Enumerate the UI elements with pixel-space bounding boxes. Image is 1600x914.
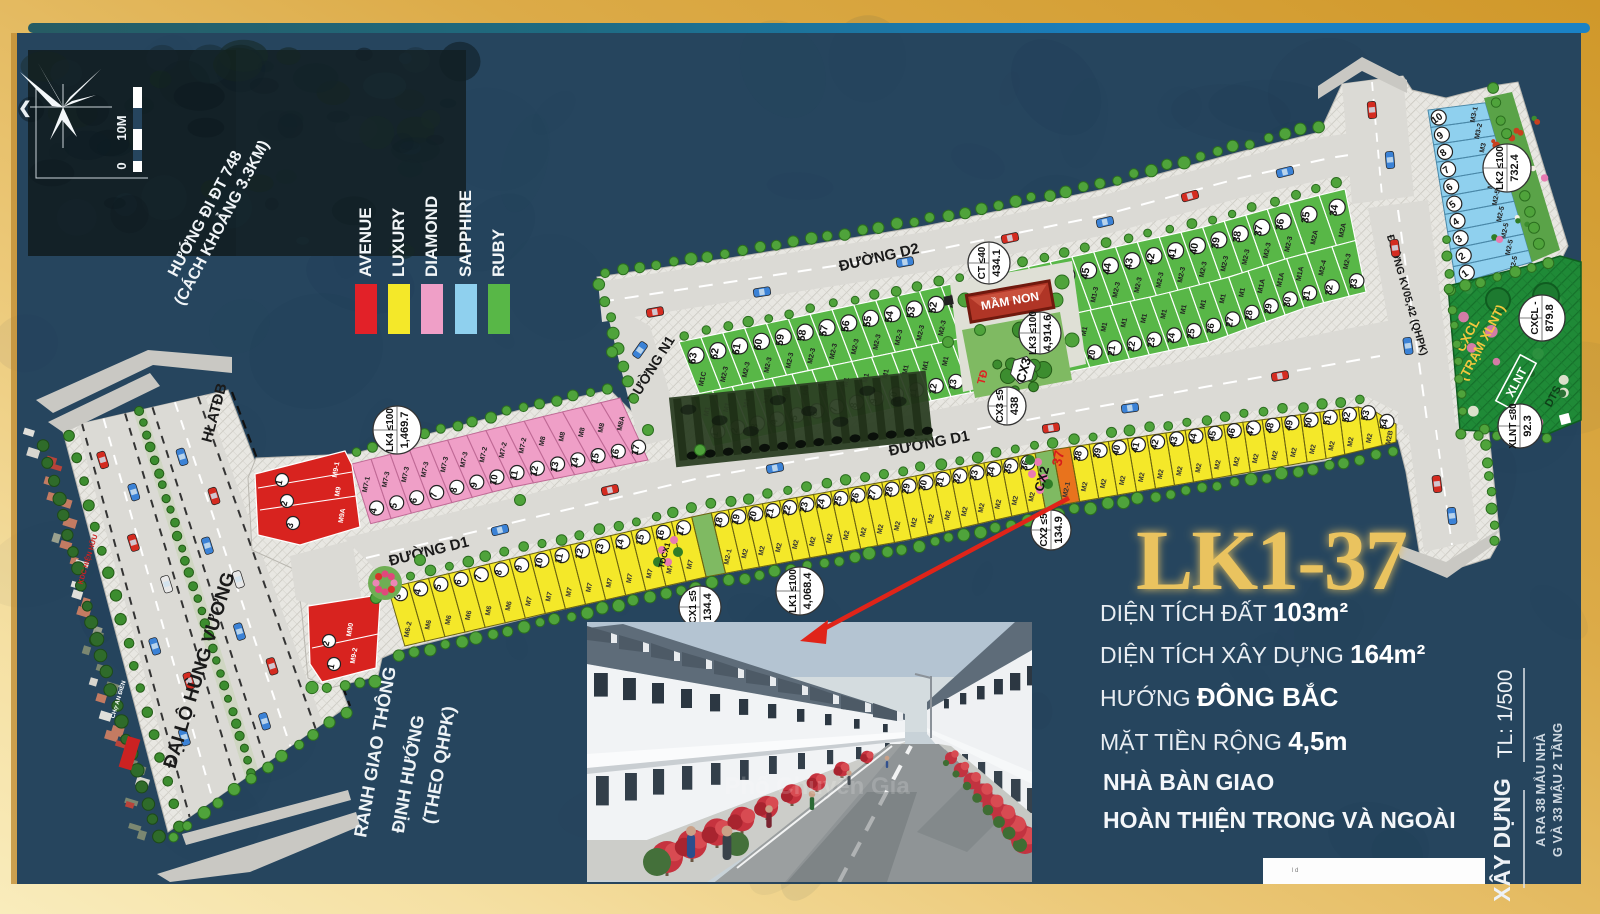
svg-text:TL: 1/500: TL: 1/500 — [1494, 670, 1517, 759]
svg-text:4,914.6: 4,914.6 — [1042, 315, 1054, 352]
svg-text:20: 20 — [747, 510, 760, 523]
svg-text:XÂY DỰNG: XÂY DỰNG — [1488, 778, 1515, 901]
svg-text:35: 35 — [1299, 211, 1313, 224]
svg-text:43: 43 — [1168, 435, 1181, 448]
svg-text:38: 38 — [1072, 450, 1085, 463]
svg-text:29: 29 — [900, 482, 913, 495]
svg-text:62: 62 — [708, 347, 722, 360]
svg-text:16: 16 — [610, 448, 623, 460]
svg-text:46: 46 — [1225, 427, 1238, 440]
svg-text:AVENUE: AVENUE — [356, 207, 375, 277]
svg-text:HƯỚNG ĐÔNG BẮC: HƯỚNG ĐÔNG BẮC — [1100, 682, 1339, 712]
svg-text:LK1 ≤100: LK1 ≤100 — [788, 569, 799, 613]
svg-text:4,068.4: 4,068.4 — [802, 572, 814, 610]
svg-text:XLNT ≤80: XLNT ≤80 — [1508, 403, 1519, 449]
svg-text:30: 30 — [1282, 296, 1294, 308]
svg-text:134.9: 134.9 — [1053, 516, 1065, 544]
svg-text:12: 12 — [573, 547, 586, 560]
svg-text:732.4: 732.4 — [1509, 153, 1521, 181]
svg-text:134.4: 134.4 — [702, 592, 714, 620]
svg-text:0: 0 — [114, 162, 129, 169]
svg-text:22: 22 — [781, 504, 794, 517]
svg-text:HOÀN THIỆN TRONG VÀ NGOÀI: HOÀN THIỆN TRONG VÀ NGOÀI — [1103, 806, 1456, 833]
svg-text:26: 26 — [1205, 322, 1217, 334]
svg-text:12: 12 — [927, 383, 939, 395]
svg-text:434.1: 434.1 — [991, 249, 1003, 277]
svg-text:37: 37 — [1252, 224, 1266, 237]
svg-text:49: 49 — [1283, 419, 1296, 432]
svg-text:60: 60 — [752, 338, 766, 351]
svg-text:RUBY: RUBY — [489, 228, 508, 277]
svg-text:48: 48 — [1264, 422, 1277, 435]
svg-text:10M: 10M — [114, 115, 129, 140]
svg-text:32: 32 — [1323, 284, 1335, 296]
svg-text:47: 47 — [1245, 424, 1258, 437]
svg-text:MẶT TIỀN RỘNG 4,5m: MẶT TIỀN RỘNG 4,5m — [1100, 726, 1348, 756]
svg-text:34: 34 — [1327, 204, 1341, 217]
svg-text:33: 33 — [1348, 278, 1360, 290]
svg-text:54: 54 — [883, 310, 897, 323]
svg-text:l d: l d — [1292, 868, 1298, 874]
svg-text:20: 20 — [1086, 349, 1098, 361]
svg-text:55: 55 — [861, 315, 875, 328]
svg-text:CX2 ≤5: CX2 ≤5 — [1039, 513, 1050, 547]
svg-text:LK4 ≤100: LK4 ≤100 — [385, 408, 396, 452]
svg-text:17: 17 — [675, 524, 688, 537]
svg-text:LK1-37: LK1-37 — [1136, 512, 1406, 608]
svg-text:92.3: 92.3 — [1522, 415, 1534, 436]
svg-text:23: 23 — [1146, 336, 1158, 348]
svg-text:56: 56 — [839, 319, 853, 332]
svg-text:28: 28 — [883, 486, 896, 499]
svg-text:879.8: 879.8 — [1544, 304, 1556, 332]
svg-text:CX1 ≤5: CX1 ≤5 — [688, 590, 699, 624]
svg-text:42: 42 — [1149, 438, 1162, 451]
svg-text:50: 50 — [1302, 416, 1315, 429]
svg-text:23: 23 — [798, 501, 811, 514]
svg-text:30: 30 — [917, 479, 930, 492]
svg-text:18: 18 — [713, 516, 726, 529]
svg-text:17: 17 — [630, 444, 643, 456]
svg-text:40: 40 — [1110, 444, 1123, 457]
svg-text:10: 10 — [533, 557, 546, 570]
svg-text:❮: ❮ — [18, 100, 31, 118]
svg-text:44: 44 — [1101, 262, 1115, 275]
svg-text:43: 43 — [1122, 257, 1136, 270]
svg-text:39: 39 — [1209, 236, 1223, 249]
svg-text:CXCL -: CXCL - — [1530, 301, 1541, 334]
svg-text:41: 41 — [1166, 247, 1180, 260]
svg-text:13: 13 — [549, 461, 562, 473]
svg-text:63: 63 — [686, 352, 700, 365]
svg-text:57: 57 — [817, 324, 831, 337]
svg-text:29: 29 — [1262, 303, 1274, 315]
svg-text:NHÀ BÀN GIAO: NHÀ BÀN GIAO — [1103, 768, 1274, 795]
svg-text:16: 16 — [654, 529, 667, 542]
svg-text:19: 19 — [730, 513, 743, 526]
svg-text:58: 58 — [795, 329, 809, 342]
svg-text:32: 32 — [951, 472, 964, 485]
svg-text:DIAMOND: DIAMOND — [422, 196, 441, 277]
svg-text:33: 33 — [968, 469, 981, 482]
svg-text:36: 36 — [1273, 218, 1287, 231]
svg-text:40: 40 — [1188, 242, 1202, 255]
svg-text:53: 53 — [1359, 409, 1372, 422]
svg-text:LUXURY: LUXURY — [389, 207, 408, 277]
svg-text:59: 59 — [774, 333, 788, 346]
svg-text:LK2 ≤100: LK2 ≤100 — [1495, 146, 1506, 190]
svg-text:CT ≤40: CT ≤40 — [977, 246, 988, 279]
svg-text:53: 53 — [905, 306, 919, 319]
svg-text:Phố Chuyên Gia: Phố Chuyên Gia — [724, 773, 910, 800]
svg-text:SAPPHIRE: SAPPHIRE — [456, 190, 475, 277]
svg-text:CX3 ≤5: CX3 ≤5 — [995, 389, 1006, 423]
svg-text:12: 12 — [529, 465, 542, 477]
svg-text:DIỆN TÍCH XÂY DỰNG 164m²: DIỆN TÍCH XÂY DỰNG 164m² — [1100, 639, 1426, 669]
svg-text:A RA 38 MẮU NHÀ: A RA 38 MẮU NHÀ — [1533, 732, 1548, 846]
svg-text:52: 52 — [1340, 411, 1353, 424]
svg-text:LK3 ≤100: LK3 ≤100 — [1028, 311, 1039, 355]
svg-text:42: 42 — [1144, 252, 1158, 265]
svg-text:45: 45 — [1079, 267, 1093, 280]
svg-text:27: 27 — [866, 489, 879, 502]
svg-text:27: 27 — [1224, 316, 1236, 328]
svg-text:438: 438 — [1009, 397, 1021, 415]
svg-text:13: 13 — [594, 543, 607, 556]
svg-text:28: 28 — [1243, 309, 1255, 321]
svg-text:61: 61 — [730, 342, 744, 355]
svg-text:1,469.7: 1,469.7 — [399, 412, 411, 449]
svg-text:G VÀ 33 MẬU 2 TẦNG: G VÀ 33 MẬU 2 TẦNG — [1550, 723, 1565, 857]
svg-text:DIỆN TÍCH ĐẤT 103m²: DIỆN TÍCH ĐẤT 103m² — [1100, 597, 1348, 627]
svg-text:26: 26 — [849, 492, 862, 505]
svg-text:22: 22 — [1126, 341, 1138, 353]
svg-text:10: 10 — [488, 474, 501, 486]
svg-text:13: 13 — [947, 379, 959, 391]
svg-text:52: 52 — [926, 301, 940, 314]
svg-text:38: 38 — [1231, 230, 1245, 243]
svg-text:39: 39 — [1091, 447, 1104, 460]
